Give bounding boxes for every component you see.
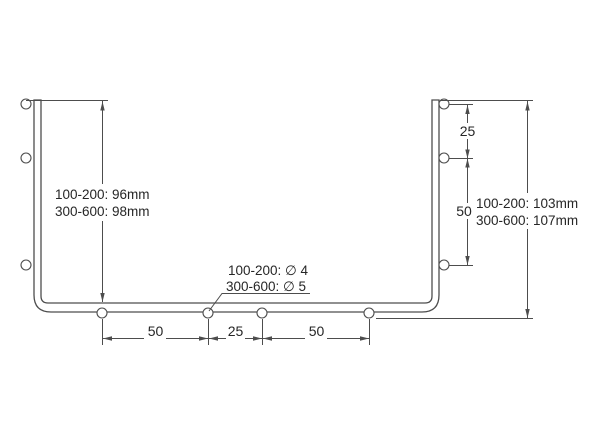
arrow-left	[103, 336, 112, 340]
bottom-spacing-middle-label: 25	[228, 323, 244, 339]
flange-hole	[439, 260, 449, 270]
bottom-hole	[257, 308, 267, 318]
bottom-spacing-dimensions: 50 25 50	[103, 319, 370, 345]
hole-diameter-label-line2: 300-600: ∅ 5	[226, 279, 306, 294]
arrow-right	[199, 336, 208, 340]
right-spacing-dimensions: 25 50	[449, 105, 477, 266]
flange-hole	[21, 260, 31, 270]
arrow-right	[253, 336, 262, 340]
arrow-down	[465, 150, 469, 159]
bottom-spacing-left-label: 50	[148, 323, 164, 339]
drawing-canvas: 100-200: 96mm 300-600: 98mm 100-200: 103…	[0, 0, 600, 425]
left-height-label-line1: 100-200: 96mm	[55, 187, 150, 202]
arrow-right	[360, 336, 369, 340]
arrow-left	[209, 336, 218, 340]
flange-hole	[21, 153, 31, 163]
arrow-up	[100, 102, 104, 111]
flange-hole	[439, 153, 449, 163]
bottom-hole	[97, 308, 107, 318]
arrow-up	[525, 102, 529, 111]
bottom-hole	[364, 308, 374, 318]
right-height-label-line1: 100-200: 103mm	[476, 196, 578, 211]
hole-diameter-label-line1: 100-200: ∅ 4	[228, 263, 309, 278]
right-height-dimension: 100-200: 103mm 300-600: 107mm	[376, 101, 584, 319]
right-flange-holes	[439, 99, 449, 270]
bottom-hole	[203, 308, 213, 318]
bottom-spacing-right-label: 50	[309, 323, 325, 339]
right-height-label-line2: 300-600: 107mm	[476, 213, 578, 228]
arrow-down	[525, 309, 529, 318]
arrow-left	[263, 336, 272, 340]
left-height-label-line2: 300-600: 98mm	[55, 204, 150, 219]
arrow-up	[465, 105, 469, 114]
arrow-down	[100, 293, 104, 302]
left-height-dimension: 100-200: 96mm 300-600: 98mm	[26, 101, 154, 303]
left-flange-holes	[21, 99, 31, 270]
arrow-up	[465, 159, 469, 168]
arrow-down	[465, 256, 469, 265]
technical-drawing: 100-200: 96mm 300-600: 98mm 100-200: 103…	[0, 0, 600, 425]
right-spacing-bottom-label: 50	[456, 203, 472, 219]
right-spacing-top-label: 25	[460, 123, 476, 139]
